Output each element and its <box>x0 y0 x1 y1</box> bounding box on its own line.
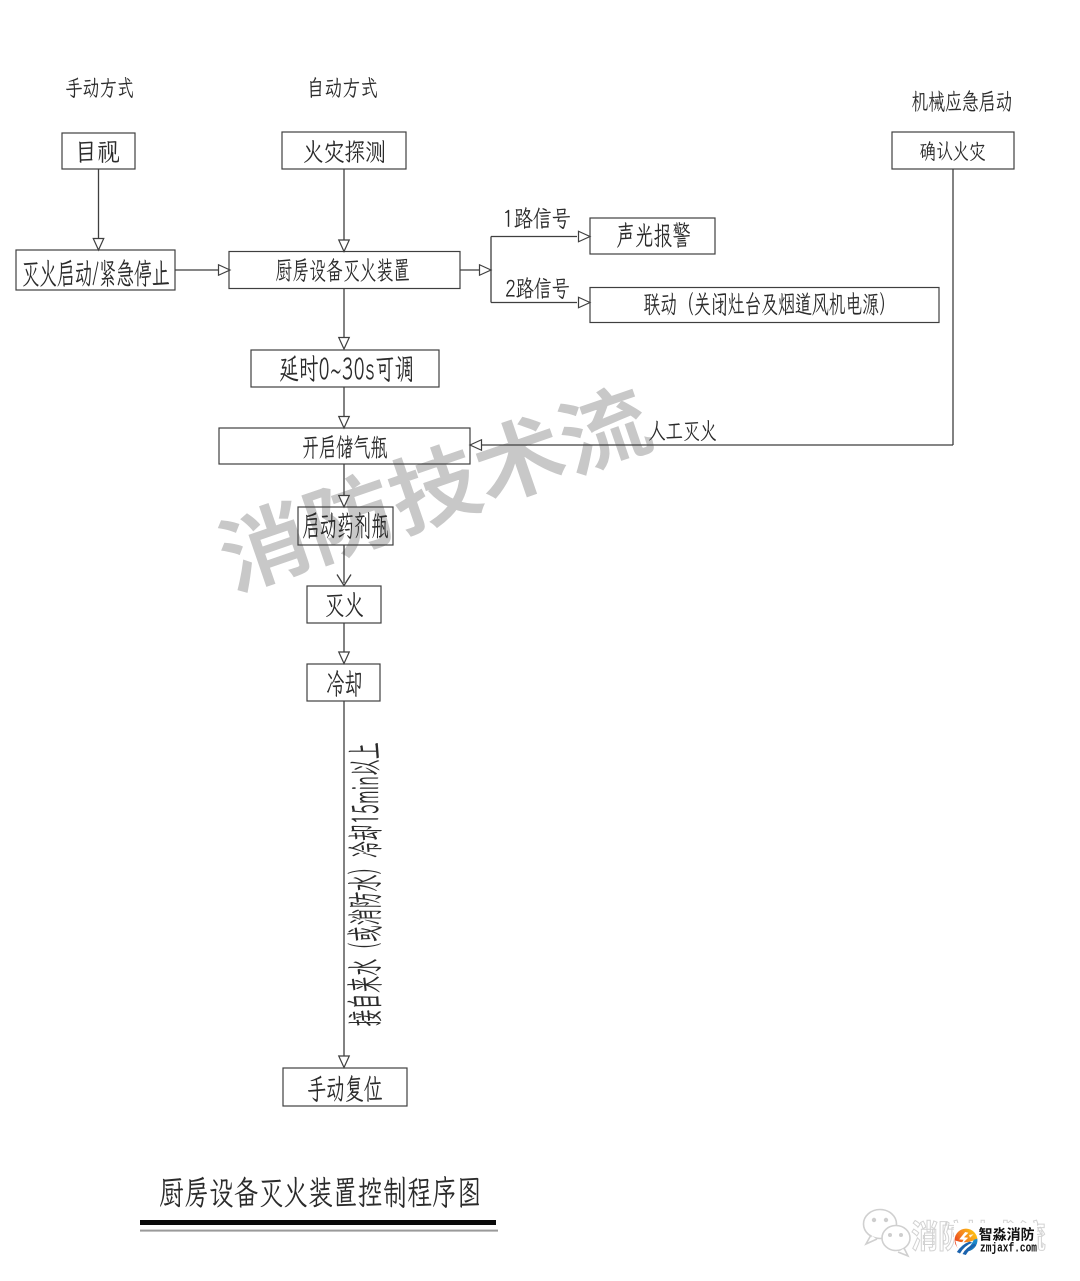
svg-text:zmjaxf.com: zmjaxf.com <box>980 1242 1037 1256</box>
